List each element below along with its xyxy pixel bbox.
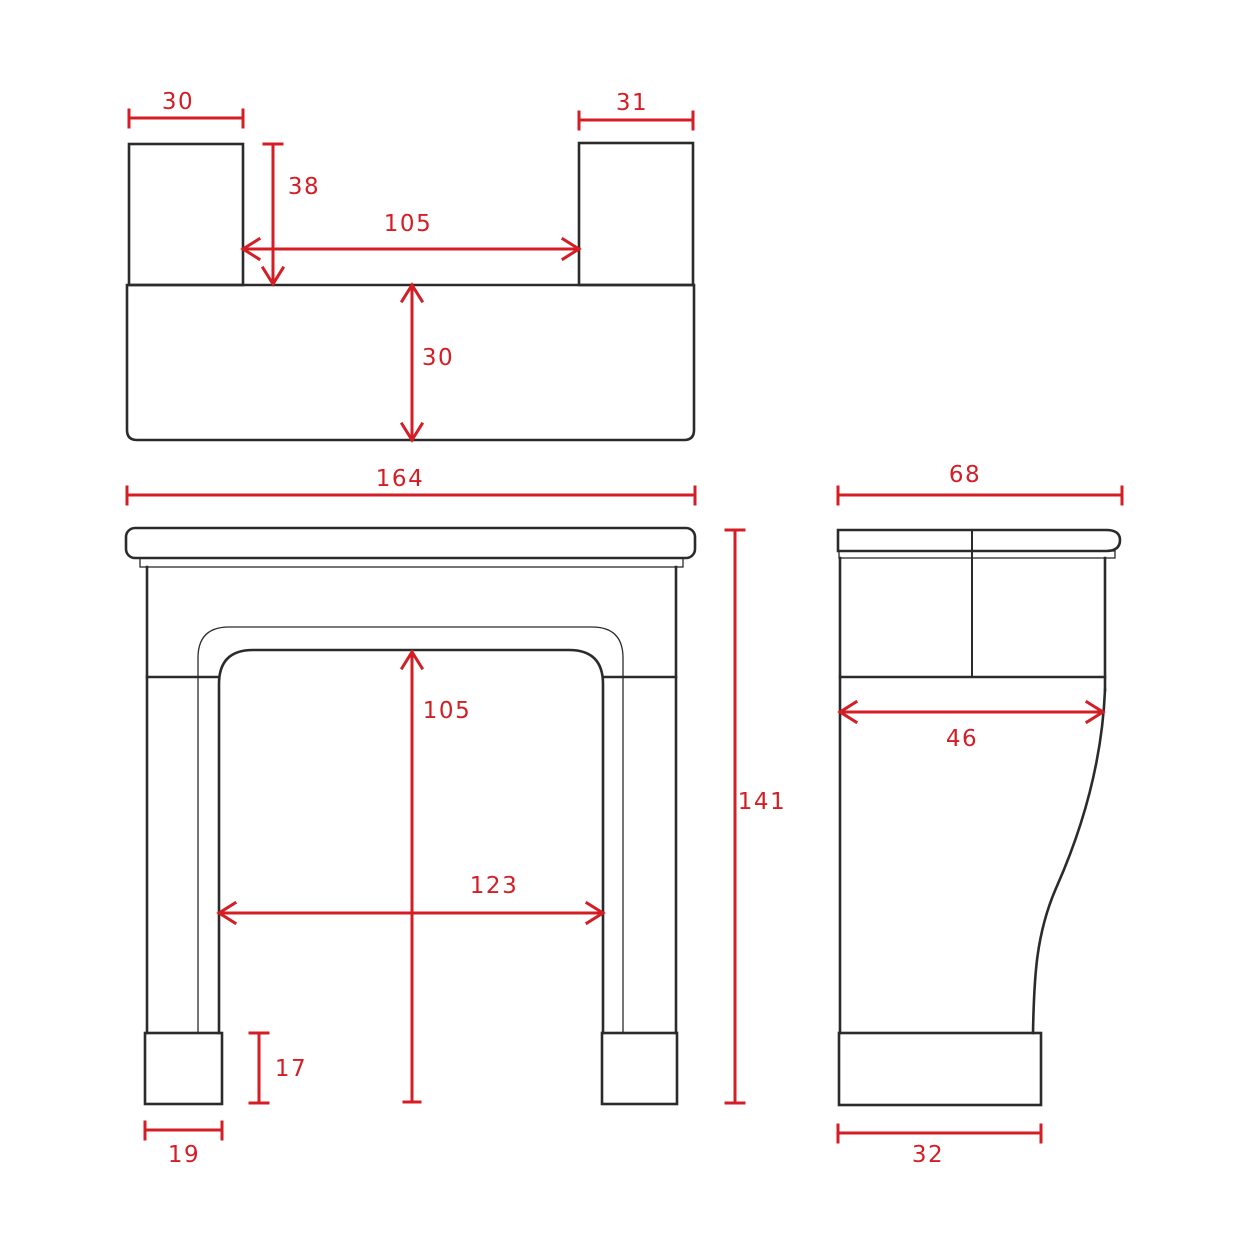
dim-label: 32 [912,1142,944,1168]
dim-plan-block-depth: 38 [263,144,320,284]
dim-side-mid-depth: 46 [840,702,1103,752]
dim-front-overall-width: 164 [127,466,695,504]
dim-front-plinth-height: 17 [250,1033,307,1103]
side-shelf-outline [838,530,1120,551]
dim-label: 38 [288,174,320,200]
side-corbel-curve [1033,690,1105,1033]
dim-plan-shelf-depth: 30 [402,285,454,440]
front-left-plinth [145,1033,222,1104]
plan-view: 30 31 38 105 30 [127,89,694,440]
front-shelf-lip [140,558,683,567]
dim-label: 46 [946,726,978,752]
dim-label: 68 [949,462,981,488]
drawing-page: 30 31 38 105 30 [0,0,1250,1250]
dim-label: 123 [470,873,518,899]
front-right-plinth [602,1033,677,1104]
dim-plan-between-blocks: 105 [243,211,579,259]
side-view: 68 46 32 [838,462,1122,1168]
front-view: 164 141 105 123 17 [126,466,786,1168]
dim-label: 164 [376,466,424,492]
dim-label: 30 [422,345,454,371]
dim-label: 17 [275,1056,307,1082]
dim-label: 105 [384,211,432,237]
technical-drawing-canvas: 30 31 38 105 30 [0,0,1250,1250]
plan-left-return-block [129,144,243,285]
dim-label: 105 [423,698,471,724]
dim-label: 141 [738,789,786,815]
dim-plan-left-block-width: 30 [129,89,243,127]
plan-right-return-block [579,143,693,285]
dim-front-overall-height: 141 [726,530,786,1103]
dim-front-opening-height: 105 [402,652,471,1102]
side-plinth [839,1033,1041,1105]
dim-label: 30 [162,89,194,115]
dim-label: 31 [616,90,648,116]
dim-side-base-depth: 32 [838,1125,1041,1168]
dim-side-overall-depth: 68 [838,462,1122,504]
dim-label: 19 [168,1142,200,1168]
front-shelf-outline [126,528,695,558]
dim-plan-right-block-width: 31 [579,90,693,129]
dim-front-plinth-width: 19 [145,1122,222,1168]
